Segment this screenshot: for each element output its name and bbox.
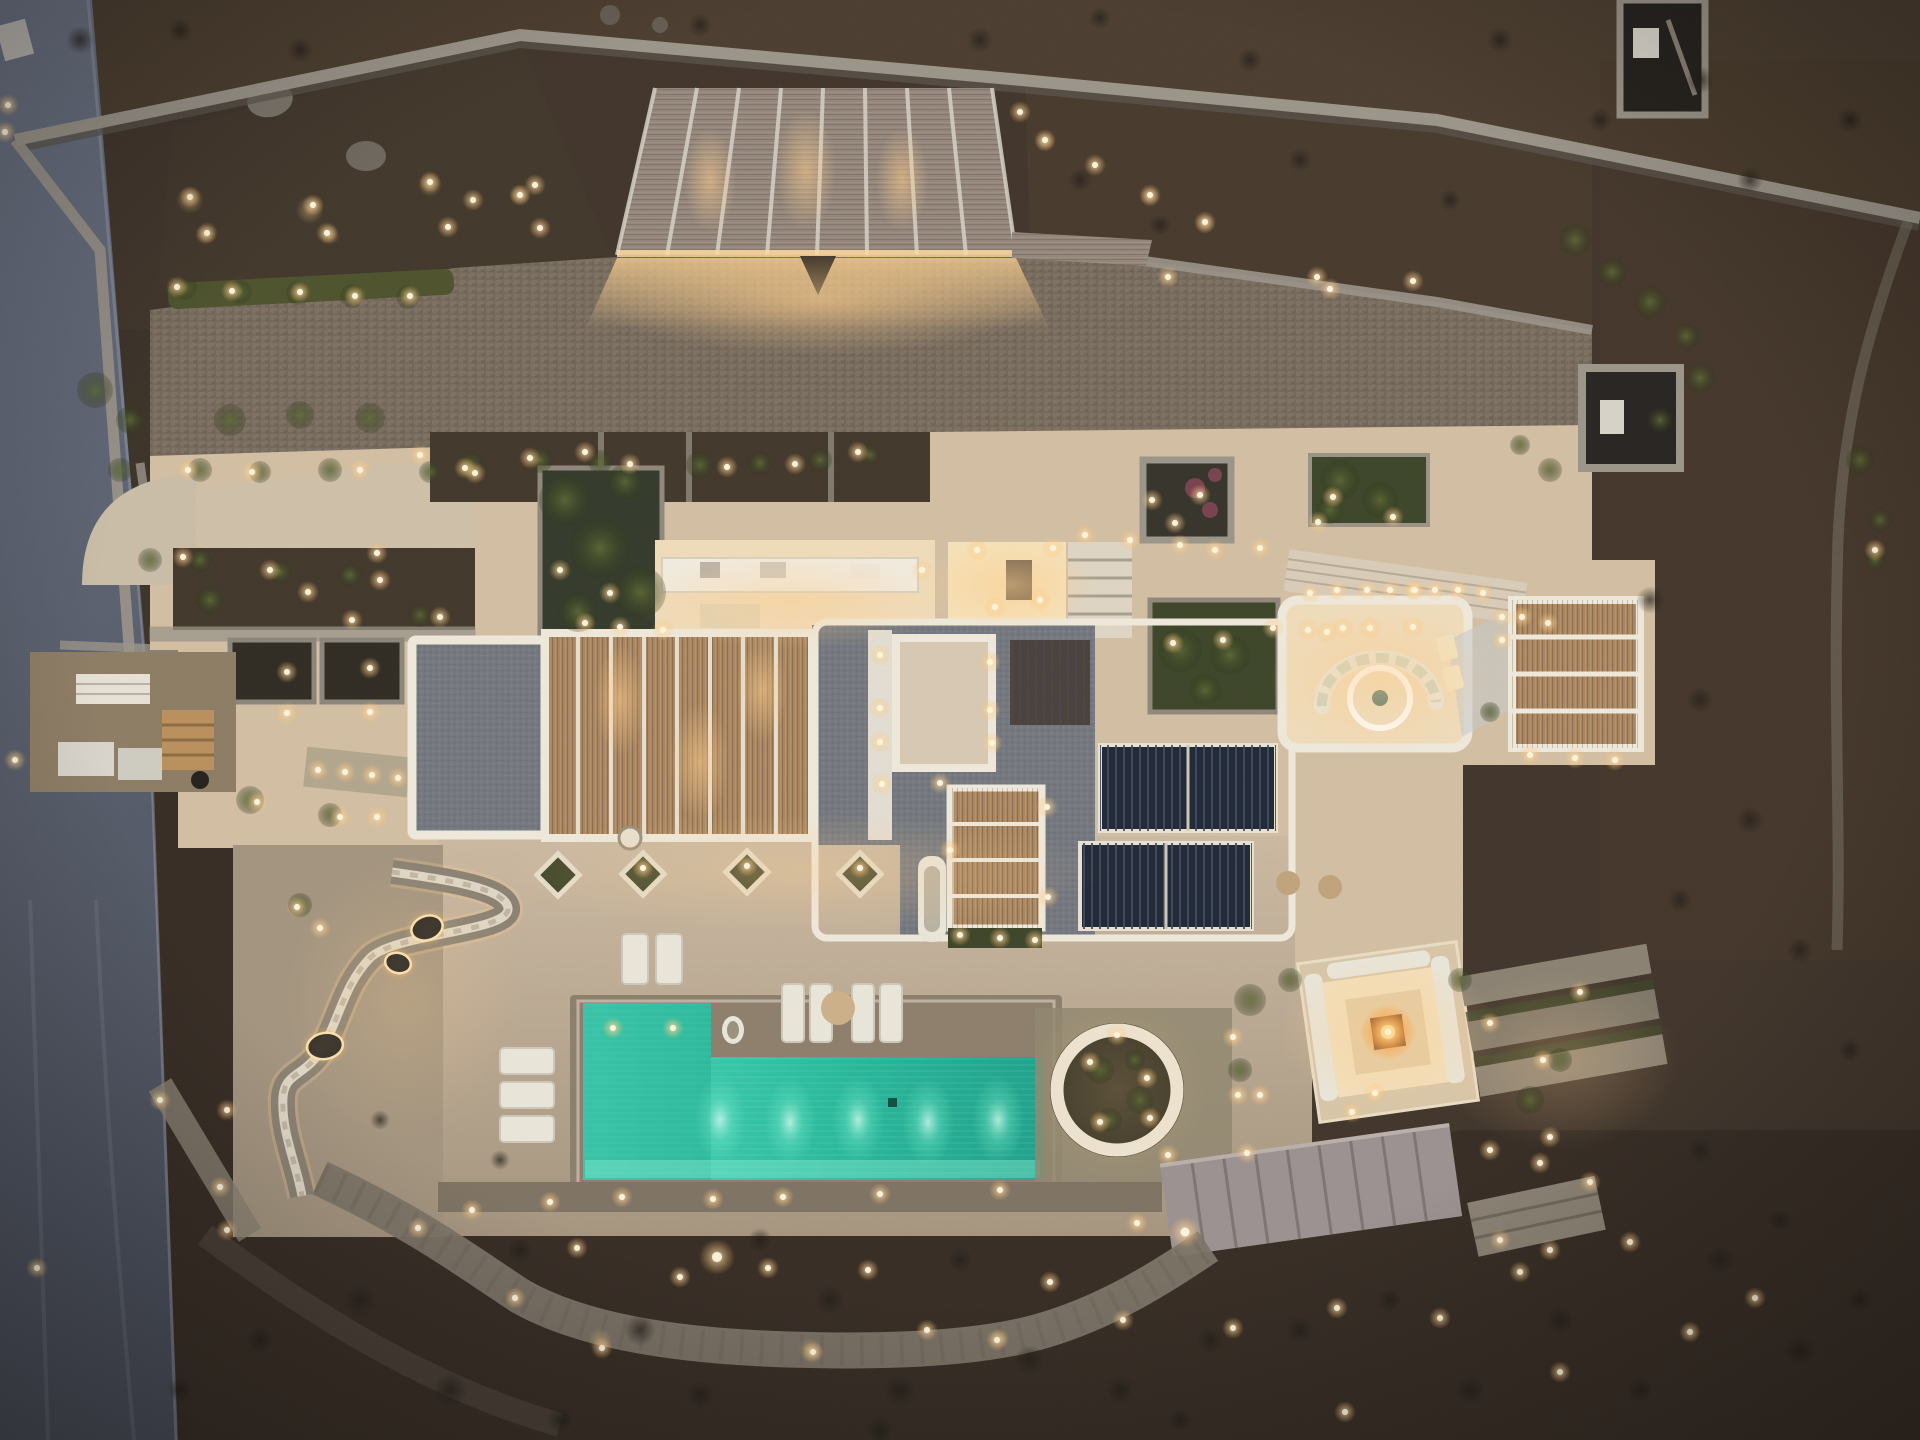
vignette	[0, 0, 1920, 1440]
aerial-photo: Aerial dusk photograph of an illuminated…	[0, 0, 1920, 1440]
scene-canvas	[0, 0, 1920, 1440]
